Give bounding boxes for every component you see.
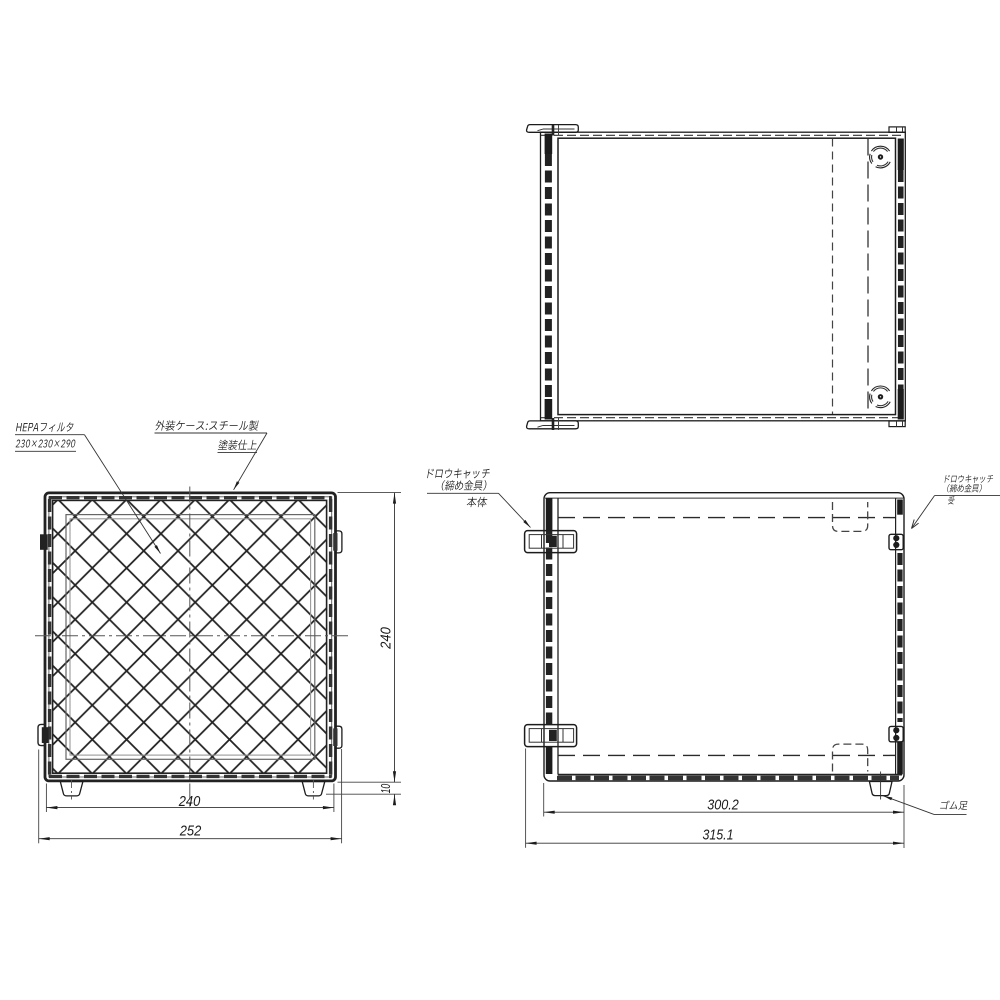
svg-text:240: 240	[377, 627, 394, 650]
svg-text:252: 252	[179, 823, 202, 840]
svg-text:315.1: 315.1	[703, 827, 734, 844]
svg-text:300.2: 300.2	[707, 796, 739, 813]
svg-text:240: 240	[178, 793, 201, 810]
svg-text:10: 10	[379, 784, 393, 794]
